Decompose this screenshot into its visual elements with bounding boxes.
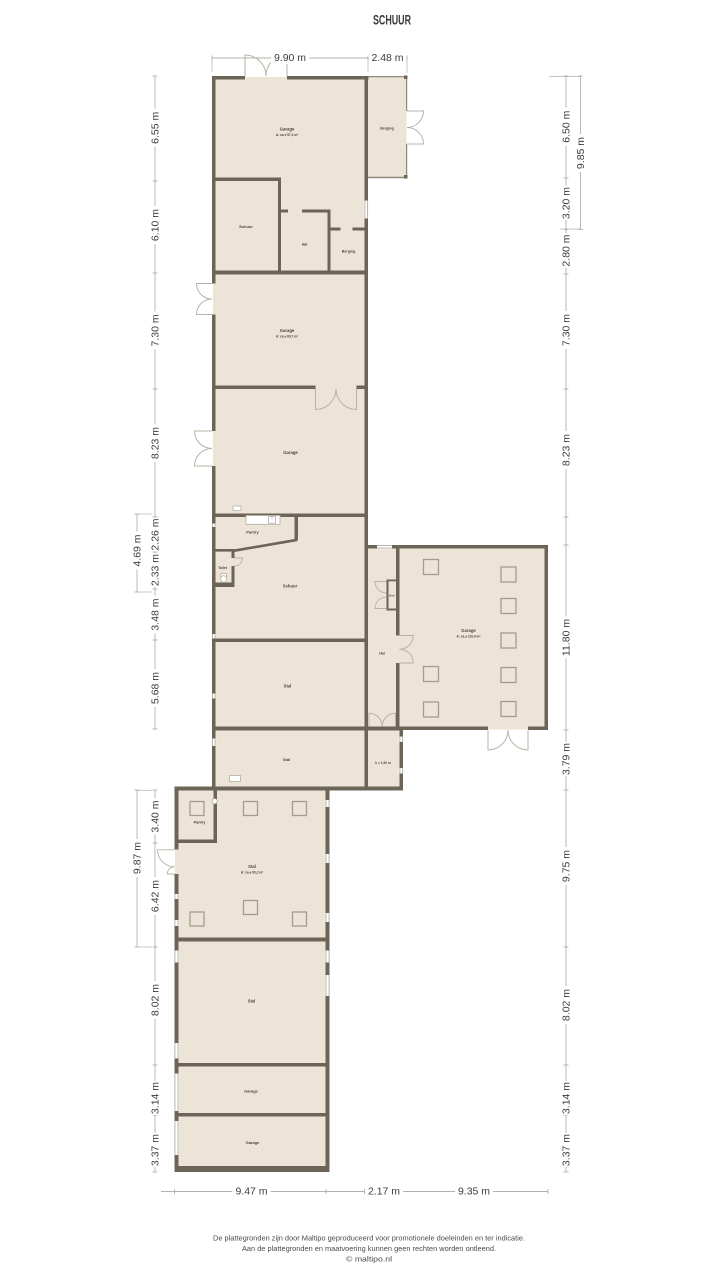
svg-text:2.80 m: 2.80 m [561, 234, 573, 266]
svg-text:7.30 m: 7.30 m [150, 314, 162, 346]
svg-text:Pantry: Pantry [246, 530, 259, 535]
svg-text:6.42 m: 6.42 m [150, 880, 162, 912]
svg-text:Hal: Hal [379, 652, 385, 656]
svg-text:3.40 m: 3.40 m [150, 800, 162, 832]
svg-text:2.33 m: 2.33 m [150, 554, 162, 586]
svg-text:9.85 m: 9.85 m [575, 137, 587, 169]
svg-text:Stal: Stal [248, 864, 256, 869]
svg-text:Garage: Garage [461, 628, 476, 633]
svg-text:8.23 m: 8.23 m [561, 434, 573, 466]
svg-text:8.23 m: 8.23 m [150, 427, 162, 459]
svg-text:Stal: Stal [283, 757, 290, 762]
svg-text:6.50 m: 6.50 m [561, 110, 573, 142]
svg-text:2.17 m: 2.17 m [368, 1185, 400, 1197]
svg-text:3.14 m: 3.14 m [561, 1082, 573, 1114]
svg-text:Hal: Hal [302, 243, 308, 247]
svg-text:Berging: Berging [380, 127, 394, 131]
svg-text:Garage: Garage [280, 127, 295, 132]
svg-text:3.79 m: 3.79 m [561, 743, 573, 775]
svg-text:9.47 m: 9.47 m [235, 1185, 267, 1197]
svg-text:Garage: Garage [283, 450, 298, 455]
svg-text:9.35 m: 9.35 m [458, 1185, 490, 1197]
svg-text:8.02 m: 8.02 m [561, 989, 573, 1021]
svg-text:11.80 m: 11.80 m [561, 619, 573, 656]
svg-text:6.10 m: 6.10 m [150, 209, 162, 241]
svg-text:Schuur: Schuur [283, 584, 298, 589]
svg-text:5.68 m: 5.68 m [150, 672, 162, 704]
svg-text:A: ca ± 57,2 m²: A: ca ± 57,2 m² [276, 133, 298, 137]
svg-text:Aan de plattegronden en maatvo: Aan de plattegronden en maatvoering kunn… [242, 1246, 496, 1253]
svg-text:Berging: Berging [342, 250, 356, 254]
svg-text:Toilet: Toilet [218, 566, 228, 570]
svg-text:SCHUUR: SCHUUR [373, 13, 411, 28]
svg-text:3.20 m: 3.20 m [561, 187, 573, 219]
svg-text:3.37 m: 3.37 m [150, 1134, 162, 1166]
svg-text:Schuur: Schuur [239, 224, 253, 229]
svg-text:Pantry: Pantry [194, 821, 207, 825]
svg-text:2.26 m: 2.26 m [150, 518, 162, 550]
svg-text:Stal: Stal [284, 684, 292, 689]
svg-text:3.48 m: 3.48 m [150, 598, 162, 630]
svg-text:A: ca ± 110,4 m²: A: ca ± 110,4 m² [457, 635, 481, 639]
svg-text:A: ca ± 69,7 m²: A: ca ± 69,7 m² [276, 335, 298, 339]
svg-text:7.30 m: 7.30 m [561, 314, 573, 346]
svg-text:A: ca ± 93,2 m²: A: ca ± 93,2 m² [241, 871, 263, 875]
svg-text:Garage: Garage [246, 1140, 261, 1145]
svg-text:Garage: Garage [280, 328, 295, 333]
svg-text:3.14 m: 3.14 m [150, 1082, 162, 1114]
svg-text:© maltipo.nl: © maltipo.nl [346, 1256, 393, 1264]
svg-text:De plattegronden zijn door Mal: De plattegronden zijn door Maltipo gepro… [213, 1236, 525, 1243]
svg-text:3.37 m: 3.37 m [561, 1134, 573, 1166]
svg-text:9.75 m: 9.75 m [561, 850, 573, 882]
svg-text:h = 1,92 m: h = 1,92 m [375, 761, 391, 765]
svg-text:Garage: Garage [244, 1089, 259, 1094]
svg-text:6.55 m: 6.55 m [150, 112, 162, 144]
svg-text:9.90 m: 9.90 m [274, 52, 306, 64]
svg-text:Kuil: Kuil [389, 594, 395, 598]
svg-text:8.02 m: 8.02 m [150, 984, 162, 1016]
svg-text:Stal: Stal [248, 999, 256, 1004]
svg-text:9.87 m: 9.87 m [132, 842, 144, 874]
svg-text:2.48 m: 2.48 m [371, 52, 403, 64]
svg-text:4.69 m: 4.69 m [132, 534, 144, 566]
